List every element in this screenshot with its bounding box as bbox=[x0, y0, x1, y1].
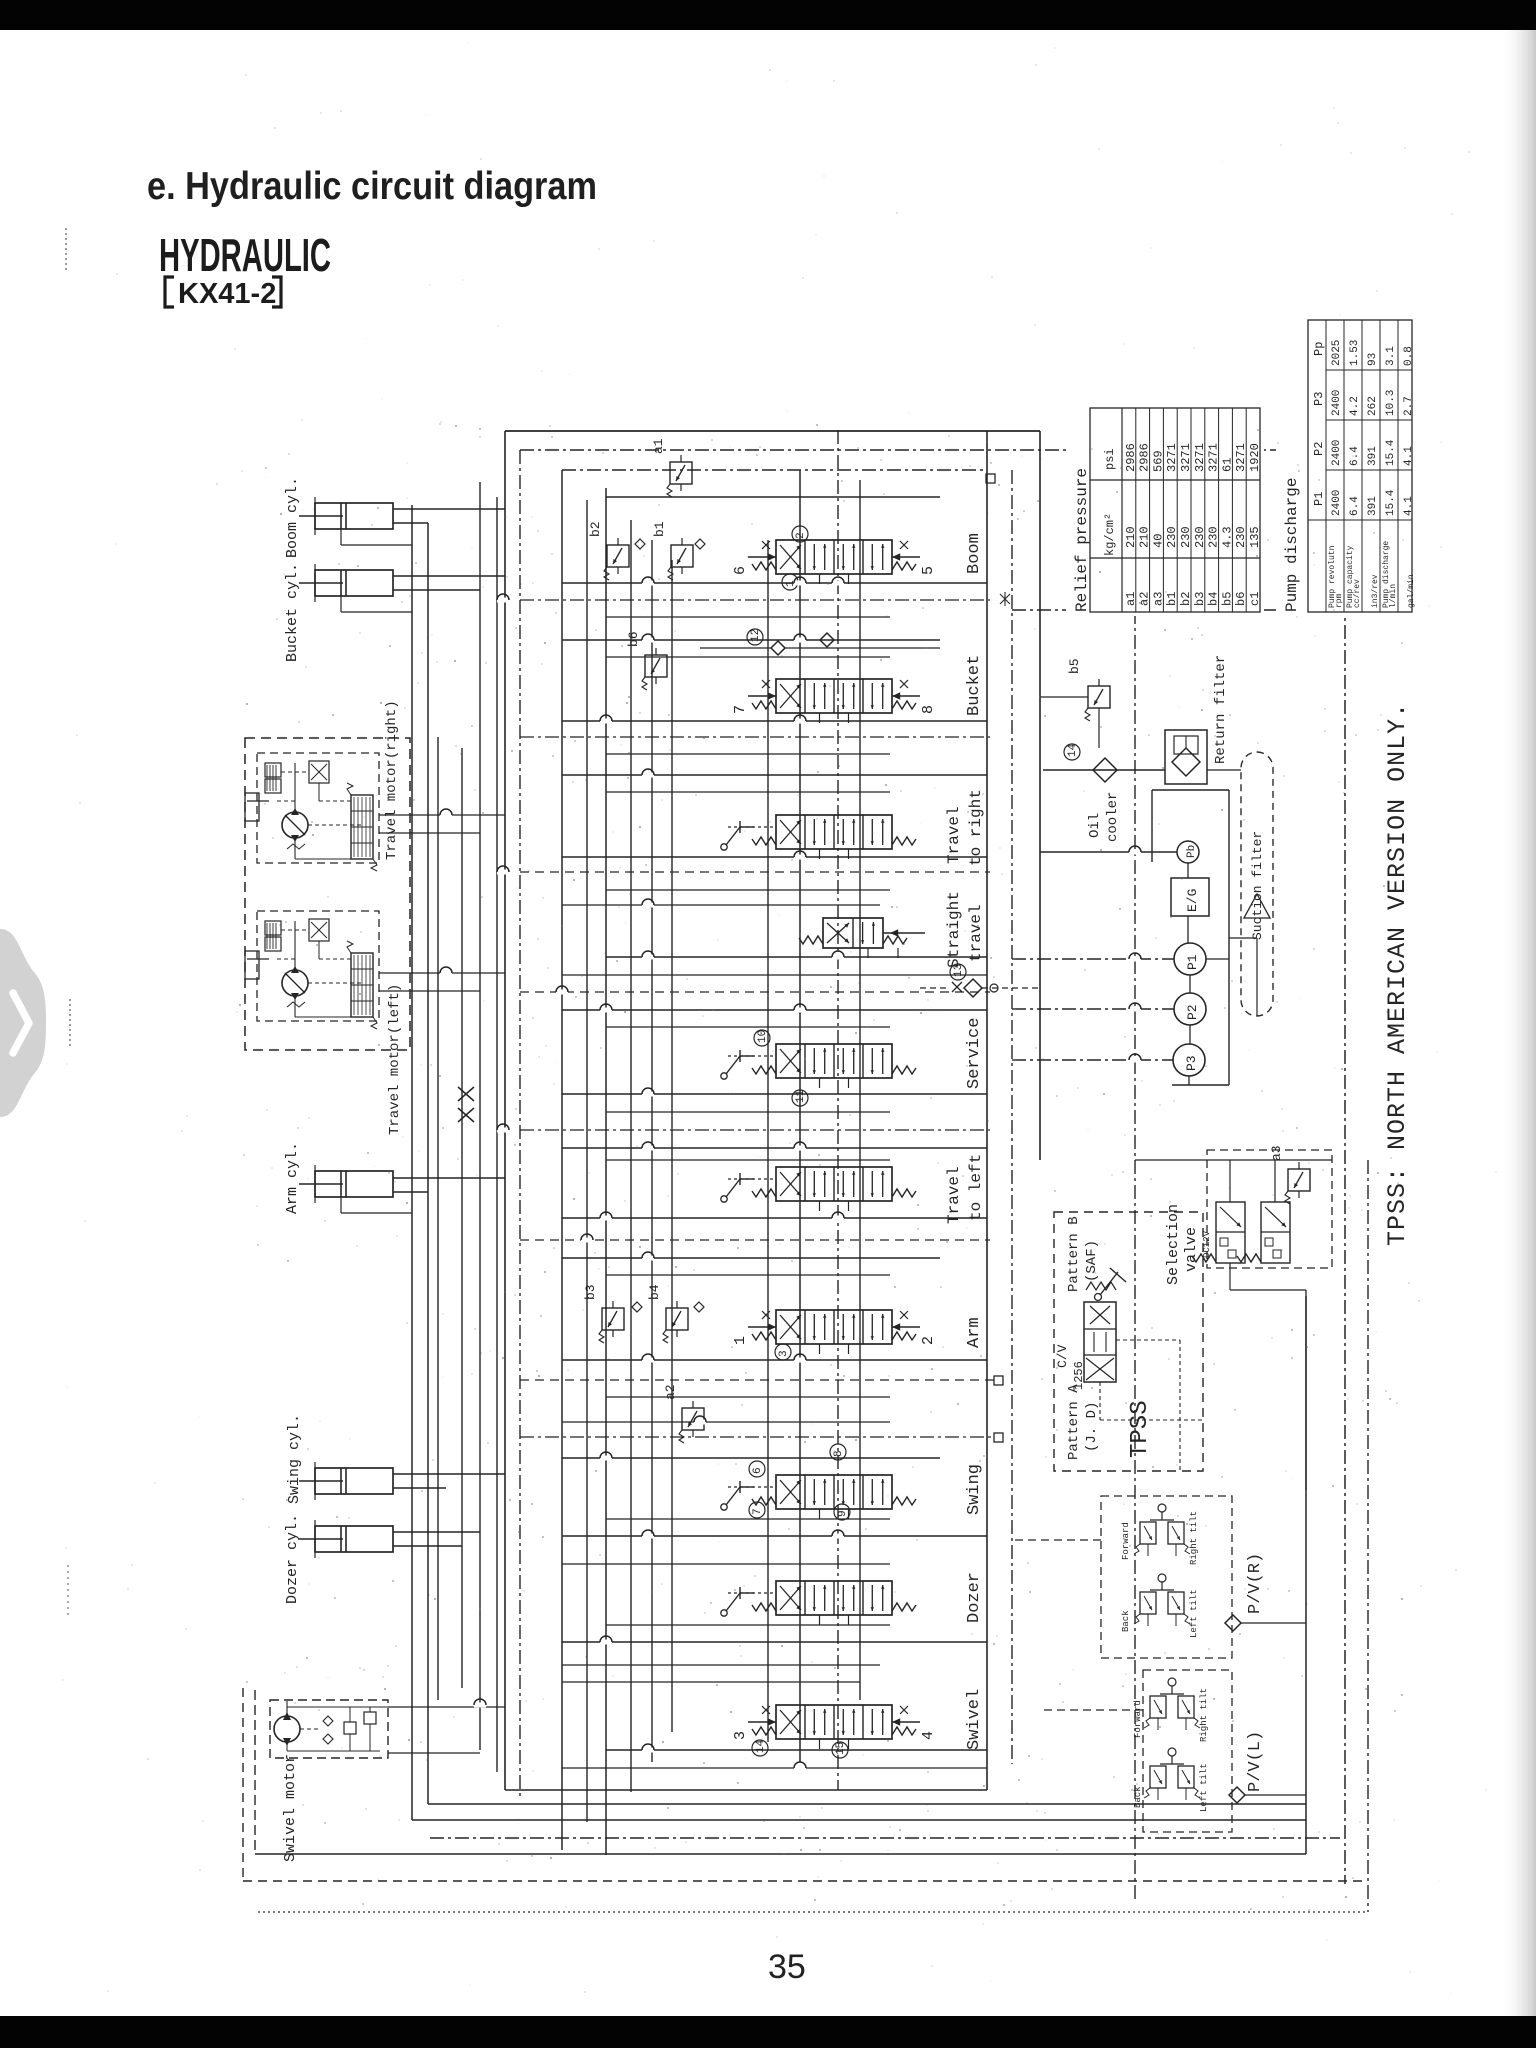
svg-text:cc/rev: cc/rev bbox=[1353, 579, 1362, 608]
svg-text:TPSS: TPSS bbox=[1127, 1400, 1154, 1458]
svg-text:15.4: 15.4 bbox=[1385, 489, 1397, 516]
svg-text:13: 13 bbox=[953, 964, 965, 977]
svg-text:P/V(R): P/V(R) bbox=[1246, 1553, 1265, 1614]
svg-text:b1: b1 bbox=[652, 521, 667, 537]
svg-text:4.1: 4.1 bbox=[1403, 496, 1415, 516]
svg-text:a2: a2 bbox=[663, 1384, 678, 1400]
svg-text:7: 7 bbox=[732, 705, 749, 714]
svg-text:Left tilt: Left tilt bbox=[1199, 1763, 1209, 1812]
svg-text:Pump discharge: Pump discharge bbox=[1283, 478, 1301, 612]
svg-text:Swing cyl.: Swing cyl. bbox=[286, 1414, 303, 1504]
svg-text:Swing: Swing bbox=[965, 1464, 984, 1515]
svg-text:135: 135 bbox=[1248, 526, 1262, 548]
svg-text:b2: b2 bbox=[588, 521, 603, 537]
svg-text:Left tilt: Left tilt bbox=[1189, 1589, 1199, 1638]
svg-text:Travel: Travel bbox=[945, 806, 963, 864]
svg-text:15.4: 15.4 bbox=[1385, 439, 1397, 466]
svg-text:Right tilt: Right tilt bbox=[1199, 1688, 1209, 1742]
svg-text:4.1: 4.1 bbox=[1403, 446, 1415, 466]
svg-text:Pb: Pb bbox=[1186, 845, 1198, 858]
svg-text:cooler: cooler bbox=[1105, 792, 1121, 842]
svg-text:0.8: 0.8 bbox=[1403, 346, 1415, 366]
svg-text:6.4: 6.4 bbox=[1349, 496, 1361, 516]
svg-text:Arm: Arm bbox=[965, 1317, 984, 1348]
svg-text:Bucket: Bucket bbox=[965, 655, 984, 716]
svg-text:travel: travel bbox=[967, 904, 985, 962]
svg-text:Relief pressure: Relief pressure bbox=[1073, 468, 1091, 612]
svg-text:(J. D): (J. D) bbox=[1084, 1402, 1100, 1452]
svg-text:P3: P3 bbox=[1312, 392, 1326, 406]
svg-text:Pattern B: Pattern B bbox=[1066, 1216, 1082, 1292]
svg-text:1: 1 bbox=[732, 1336, 749, 1345]
svg-text:kg/cm²: kg/cm² bbox=[1103, 513, 1117, 556]
svg-text:4: 4 bbox=[920, 1731, 937, 1740]
svg-text:391: 391 bbox=[1367, 446, 1379, 466]
svg-text:P2: P2 bbox=[1312, 442, 1326, 456]
svg-text:2.7: 2.7 bbox=[1403, 396, 1415, 416]
svg-text:(SAF): (SAF) bbox=[1084, 1240, 1100, 1282]
svg-text:3: 3 bbox=[732, 1731, 749, 1740]
svg-text:Bucket cyl.: Bucket cyl. bbox=[284, 563, 301, 662]
svg-text:Straight: Straight bbox=[945, 891, 963, 968]
svg-text:Swivel: Swivel bbox=[965, 1689, 984, 1750]
svg-text:Back: Back bbox=[1121, 1610, 1131, 1632]
svg-text:Travel motor(right): Travel motor(right) bbox=[384, 700, 400, 860]
svg-text:Forward: Forward bbox=[1121, 1522, 1131, 1560]
svg-text:C/V: C/V bbox=[1055, 1344, 1070, 1368]
svg-text:gal/min: gal/min bbox=[1407, 574, 1416, 608]
svg-text:c1: c1 bbox=[1248, 592, 1262, 606]
svg-text:a1: a1 bbox=[651, 438, 666, 454]
svg-text:Pattern A: Pattern A bbox=[1066, 1384, 1082, 1460]
svg-text:2400: 2400 bbox=[1331, 440, 1343, 466]
svg-text:11: 11 bbox=[795, 1089, 807, 1103]
svg-text:l/min: l/min bbox=[1389, 584, 1398, 608]
svg-text:to left: to left bbox=[967, 1154, 985, 1221]
svg-text:P/V(L): P/V(L) bbox=[1246, 1731, 1265, 1792]
svg-text:b4: b4 bbox=[647, 1284, 662, 1300]
svg-text:Swivel motor: Swivel motor bbox=[282, 1754, 299, 1862]
svg-text:P2: P2 bbox=[1185, 1004, 1200, 1020]
svg-text:Travel: Travel bbox=[945, 1166, 963, 1224]
svg-text:Oil: Oil bbox=[1087, 813, 1103, 838]
svg-text:2400: 2400 bbox=[1331, 490, 1343, 516]
svg-text:Travel motor(left): Travel motor(left) bbox=[387, 984, 403, 1135]
svg-text:2: 2 bbox=[920, 1336, 937, 1345]
svg-text:P1: P1 bbox=[1185, 954, 1200, 970]
svg-text:6.4: 6.4 bbox=[1349, 446, 1361, 466]
svg-text:10.3: 10.3 bbox=[1385, 390, 1397, 416]
svg-text:2400: 2400 bbox=[1331, 390, 1343, 416]
svg-text:rpm: rpm bbox=[1335, 593, 1344, 608]
svg-text:psi: psi bbox=[1103, 448, 1117, 470]
svg-text:Dozer: Dozer bbox=[965, 1572, 984, 1623]
svg-text:6: 6 bbox=[752, 1467, 764, 1474]
svg-text:Boom cyl.: Boom cyl. bbox=[284, 477, 301, 558]
svg-text:e. Hydraulic circuit diagram: e. Hydraulic circuit diagram bbox=[147, 165, 597, 208]
svg-text:b5: b5 bbox=[1067, 658, 1082, 674]
svg-text:Right tilt: Right tilt bbox=[1189, 1511, 1199, 1565]
svg-text:3.1: 3.1 bbox=[1385, 346, 1397, 366]
svg-text:Boom: Boom bbox=[965, 533, 984, 574]
svg-text:1920: 1920 bbox=[1248, 443, 1262, 472]
svg-text:P1: P1 bbox=[1312, 492, 1326, 506]
svg-text:b6: b6 bbox=[626, 631, 641, 647]
svg-text:9: 9 bbox=[837, 1510, 849, 1517]
svg-text:8: 8 bbox=[833, 1450, 845, 1457]
svg-text:Pp: Pp bbox=[1312, 342, 1326, 356]
svg-text:Return filter: Return filter bbox=[1213, 655, 1229, 764]
svg-text:Selection: Selection bbox=[1165, 1204, 1182, 1285]
svg-text:Suction filter: Suction filter bbox=[1250, 831, 1265, 940]
svg-text:Back: Back bbox=[1133, 1786, 1143, 1808]
svg-text:a3: a3 bbox=[1269, 1145, 1284, 1161]
svg-text:TPSS: NORTH AMERICAN VERSION O: TPSS: NORTH AMERICAN VERSION ONLY. bbox=[1383, 702, 1412, 1246]
svg-text:Arm cyl.: Arm cyl. bbox=[284, 1142, 301, 1214]
svg-text:KX41-2: KX41-2 bbox=[178, 278, 276, 310]
svg-text:HYDRAULIC: HYDRAULIC bbox=[159, 229, 331, 281]
svg-text:35: 35 bbox=[768, 1948, 806, 1986]
svg-text:6: 6 bbox=[732, 566, 749, 575]
svg-text:15: 15 bbox=[835, 1742, 847, 1755]
svg-text:2025: 2025 bbox=[1331, 340, 1343, 366]
svg-text:8: 8 bbox=[920, 705, 937, 714]
svg-text:Forward: Forward bbox=[1133, 1700, 1143, 1738]
svg-text:391: 391 bbox=[1367, 496, 1379, 516]
svg-text:4.2: 4.2 bbox=[1349, 396, 1361, 416]
svg-text:b3: b3 bbox=[583, 1284, 598, 1300]
svg-text:10: 10 bbox=[757, 1030, 769, 1043]
svg-text:2: 2 bbox=[795, 532, 807, 539]
svg-text:7: 7 bbox=[752, 1508, 764, 1515]
svg-text:P3: P3 bbox=[1184, 1055, 1199, 1071]
svg-text:93: 93 bbox=[1367, 353, 1379, 366]
svg-text:in3/rev: in3/rev bbox=[1371, 574, 1380, 608]
svg-text:3: 3 bbox=[778, 1350, 790, 1357]
svg-text:valve: valve bbox=[1183, 1227, 1200, 1272]
svg-text:14: 14 bbox=[755, 1739, 767, 1753]
svg-text:262: 262 bbox=[1367, 396, 1379, 416]
svg-text:14: 14 bbox=[1067, 743, 1079, 757]
svg-text:1.53: 1.53 bbox=[1349, 340, 1361, 366]
svg-text:E/G: E/G bbox=[1185, 889, 1200, 912]
svg-text:5: 5 bbox=[920, 566, 937, 575]
svg-text:Service: Service bbox=[965, 1018, 984, 1089]
svg-text:Dozer cyl.: Dozer cyl. bbox=[284, 1514, 301, 1604]
svg-text:to right: to right bbox=[967, 789, 985, 866]
svg-text:12: 12 bbox=[750, 629, 762, 642]
